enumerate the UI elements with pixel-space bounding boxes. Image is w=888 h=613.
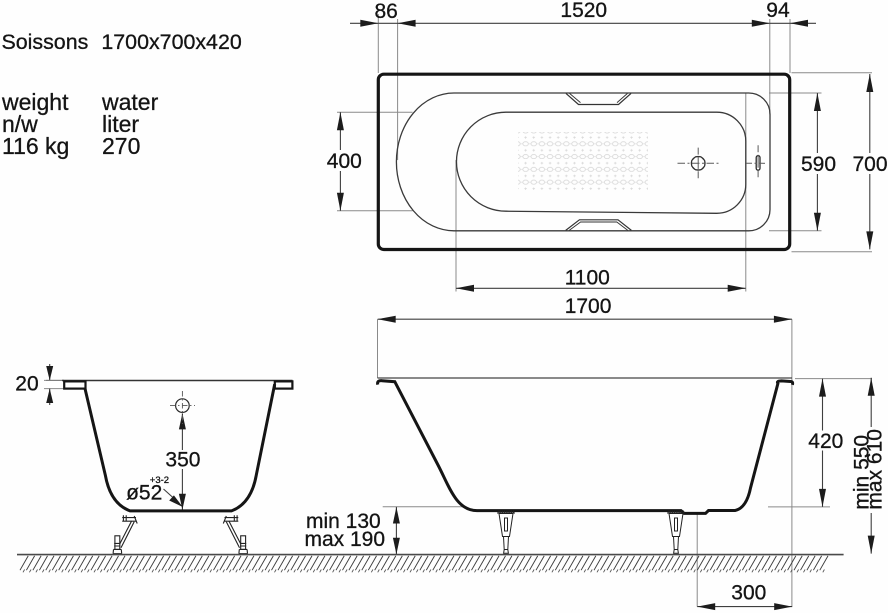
svg-text:1700x700x420: 1700x700x420: [101, 30, 241, 54]
svg-text:+3-2: +3-2: [150, 475, 169, 486]
svg-text:Soissons: Soissons: [2, 30, 89, 54]
svg-text:700: 700: [853, 153, 888, 176]
svg-text:116 kg: 116 kg: [2, 133, 69, 159]
svg-text:1520: 1520: [560, 0, 607, 22]
svg-text:300: 300: [731, 582, 766, 605]
svg-text:94: 94: [766, 0, 790, 22]
svg-text:20: 20: [15, 372, 38, 395]
svg-text:max 190: max 190: [305, 528, 386, 551]
svg-text:400: 400: [327, 150, 362, 173]
svg-text:1700: 1700: [565, 295, 612, 318]
svg-text:350: 350: [165, 448, 200, 471]
svg-text:86: 86: [375, 0, 398, 23]
svg-text:max 610: max 610: [864, 429, 887, 510]
svg-text:270: 270: [102, 133, 140, 159]
svg-text:1100: 1100: [565, 267, 610, 290]
svg-text:420: 420: [808, 430, 843, 453]
svg-text:590: 590: [801, 153, 836, 176]
